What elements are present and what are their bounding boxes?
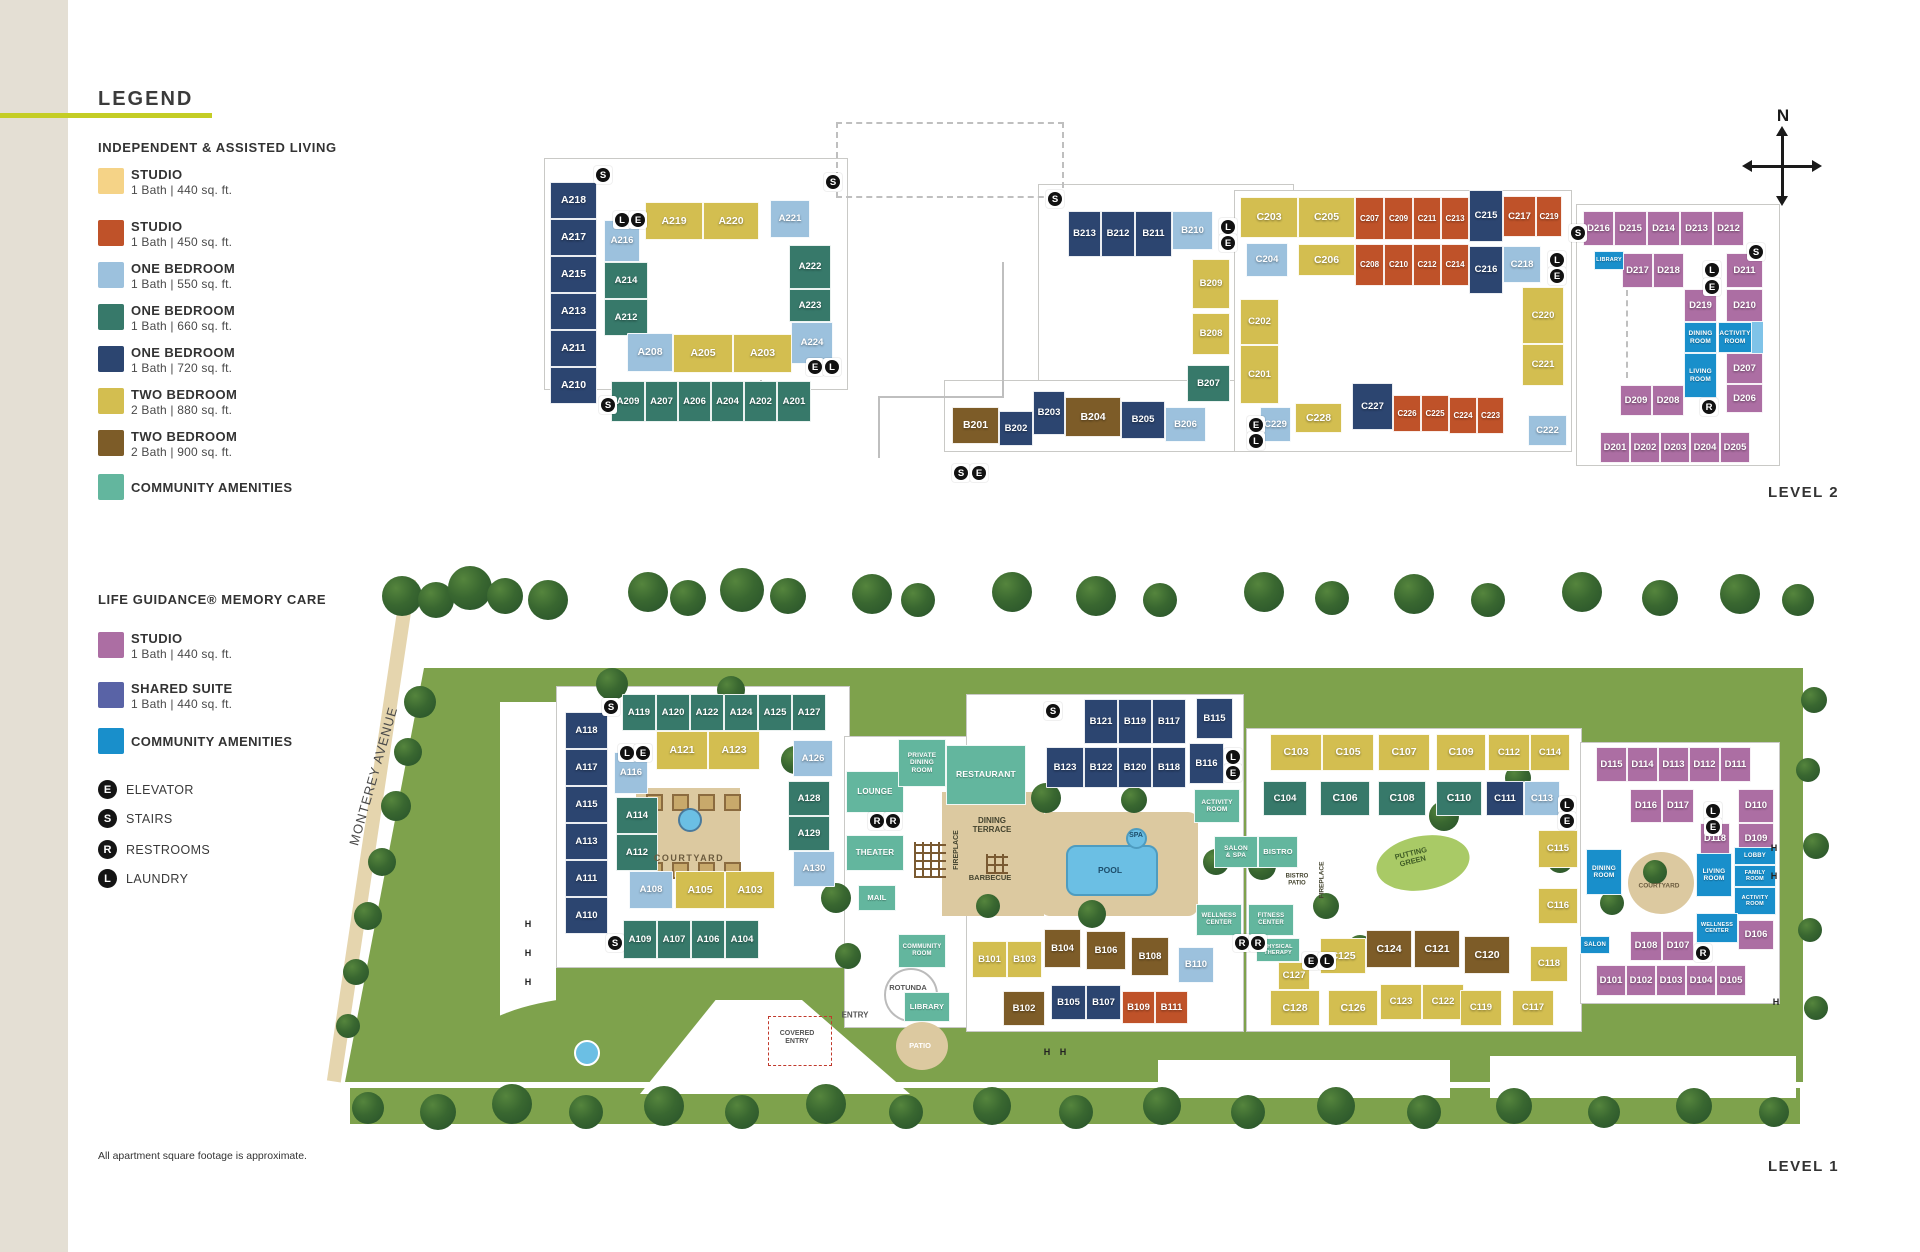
unit-c211: C211 [1413,197,1441,240]
restrooms-icon: R [1249,934,1267,952]
unit-a218: A218 [550,182,597,219]
elevator-icon: E [1219,234,1237,252]
unit-c226: C226 [1393,395,1421,432]
unit-d116: D116 [1630,789,1662,823]
tree-icon [1143,583,1177,617]
room-bistro: BISTRO [1258,836,1298,868]
tree-icon [1759,1097,1789,1127]
unit-d210: D210 [1726,289,1763,322]
unit-c213: C213 [1441,197,1469,240]
stairs-icon: S [98,809,117,828]
unit-a123: A123 [708,731,760,770]
site-label-bistro-patio: BISTRO PATIO [1286,873,1309,886]
stairs-icon: S [1569,224,1587,242]
legend-swatch [98,632,124,658]
unit-c218: C218 [1503,246,1541,283]
tree-icon [1782,584,1814,616]
legend-key-label: STAIRS [126,812,173,826]
legend-item-detail: 1 Bath | 440 sq. ft. [131,697,232,711]
unit-c212: C212 [1413,244,1441,286]
elevator-icon: E [806,358,824,376]
unit-b204: B204 [1065,397,1121,437]
unit-c113: C113 [1524,781,1560,816]
room-wellness-center: WELLNESS CENTER [1196,904,1242,936]
legend-item-name: ONE BEDROOM [131,261,235,276]
elevator-icon: E [1224,764,1242,782]
pergola [986,854,1008,874]
room-salon-spa: SALON & SPA [1214,836,1258,868]
unit-a128: A128 [788,781,830,816]
unit-c108: C108 [1378,781,1426,816]
unit-b123: B123 [1046,747,1084,788]
room-community-room: COMMUNITY ROOM [898,934,946,968]
unit-b118: B118 [1152,747,1186,788]
unit-d110: D110 [1738,789,1774,823]
unit-a118: A118 [565,712,608,749]
tree-icon [1231,1095,1265,1129]
restrooms-icon: R [98,840,117,859]
tree-icon [343,959,369,985]
tree-icon [368,848,396,876]
unit-d202: D202 [1630,432,1660,463]
restrooms-icon: R [1700,398,1718,416]
room-private-dining-room: PRIVATE DINING ROOM [898,739,946,787]
restrooms-icon: R [1694,944,1712,962]
legend-item-name: STUDIO [131,219,183,234]
elevator-icon: E [970,464,988,482]
tree-icon [354,902,382,930]
page-edge-strip [0,0,68,1252]
unit-a205: A205 [673,334,733,373]
footprint-outline [1002,262,1062,396]
unit-a127: A127 [792,694,826,731]
unit-d209: D209 [1620,385,1652,416]
unit-b202: B202 [999,411,1033,446]
legend-item-detail: 1 Bath | 660 sq. ft. [131,319,232,333]
unit-d218: D218 [1653,253,1684,288]
unit-b107: B107 [1086,985,1121,1020]
unit-a201: A201 [777,381,811,422]
unit-c115: C115 [1538,830,1578,868]
unit-c124: C124 [1366,930,1412,968]
room-activity-room: ACTIVITY ROOM [1718,322,1752,353]
tree-icon [1244,572,1284,612]
parking-bottom-mid [1158,1060,1450,1098]
legend-item: ONE BEDROOM1 Bath | 720 sq. ft. [98,346,358,390]
tree-icon [1676,1088,1712,1124]
unit-d207: D207 [1726,353,1763,384]
unit-b110: B110 [1178,947,1214,983]
unit-b205: B205 [1121,401,1165,439]
unit-c219: C219 [1536,196,1562,237]
tree-icon [644,1086,684,1126]
unit-c225: C225 [1421,395,1449,432]
tree-icon [806,1084,846,1124]
legend-item-name: COMMUNITY AMENITIES [131,480,292,495]
tree-icon [528,580,568,620]
unit-c228: C228 [1295,403,1342,433]
unit-a130: A130 [793,851,835,887]
unit-b206: B206 [1165,407,1206,442]
tree-icon [628,572,668,612]
unit-c205: C205 [1298,197,1355,238]
unit-c208: C208 [1355,244,1384,286]
room-restaurant: RESTAURANT [946,745,1026,805]
tree-icon [1143,1087,1181,1125]
room-dining-room: DINING ROOM [1684,322,1717,353]
unit-d203: D203 [1660,432,1690,463]
tree-icon [1059,1095,1093,1129]
legend-key-item: SSTAIRS [98,809,298,833]
unit-b201: B201 [952,407,999,444]
unit-d216: D216 [1583,211,1614,246]
pond [574,1040,600,1066]
legend-item: COMMUNITY AMENITIES [98,728,358,772]
unit-a119: A119 [622,694,656,731]
unit-c103: C103 [1270,734,1322,771]
legend-item-name: STUDIO [131,631,183,646]
tree-icon [1642,580,1678,616]
unit-b116: B116 [1189,743,1224,784]
unit-a121: A121 [656,731,708,770]
tree-icon [992,572,1032,612]
footprint-outline [1598,290,1628,378]
unit-d215: D215 [1614,211,1647,246]
unit-a217: A217 [550,219,597,256]
unit-a211: A211 [550,330,597,367]
unit-a110: A110 [565,897,608,934]
legend-item: ONE BEDROOM1 Bath | 660 sq. ft. [98,304,358,348]
unit-a112: A112 [616,834,658,871]
unit-c119: C119 [1460,990,1502,1026]
unit-b108: B108 [1131,937,1169,976]
stairs-icon: S [1046,190,1064,208]
unit-c214: C214 [1441,244,1469,286]
elevator-icon: E [1703,278,1721,296]
unit-d112: D112 [1689,747,1720,782]
unit-a203: A203 [733,334,792,373]
unit-c121: C121 [1414,930,1460,968]
tree-icon [1078,900,1106,928]
unit-a204: A204 [711,381,744,422]
elevator-icon: E [1704,818,1722,836]
unit-a122: A122 [690,694,724,731]
tree-icon [901,583,935,617]
site-label-dining-terrace: DINING TERRACE [973,817,1012,835]
legend-swatch [98,168,124,194]
tree-icon [1313,893,1339,919]
unit-b111: B111 [1155,991,1188,1024]
unit-c116: C116 [1538,888,1578,924]
unit-b101: B101 [972,941,1007,978]
laundry-icon: L [823,358,841,376]
tree-icon [1588,1096,1620,1128]
handicap-marker: H [1044,1047,1051,1057]
room-family-room: FAMILY ROOM [1734,865,1776,887]
unit-d104: D104 [1686,965,1716,996]
unit-d107: D107 [1662,931,1694,961]
legend-item-name: ONE BEDROOM [131,303,235,318]
tree-icon [404,686,436,718]
tree-icon [889,1095,923,1129]
legend-item: TWO BEDROOM2 Bath | 880 sq. ft. [98,388,358,432]
unit-d214: D214 [1647,211,1680,246]
handicap-marker: H [525,919,532,929]
legend-swatch [98,682,124,708]
unit-d101: D101 [1596,965,1626,996]
tree-icon [420,1094,456,1130]
unit-a109: A109 [623,920,657,959]
restrooms-icon: R [884,812,902,830]
unit-c222: C222 [1528,415,1567,446]
unit-c202: C202 [1240,299,1279,345]
laundry-icon: L [1318,952,1336,970]
tree-icon [670,580,706,616]
tree-icon [852,574,892,614]
unit-b104: B104 [1044,929,1081,968]
umbrella-table [724,794,741,811]
unit-d105: D105 [1716,965,1746,996]
site-label-fireplace: FIREPLACE [953,830,961,870]
stairs-icon: S [1747,243,1765,261]
unit-a113: A113 [565,823,608,860]
unit-b213: B213 [1068,211,1101,257]
unit-d208: D208 [1652,385,1684,416]
unit-a129: A129 [788,816,830,851]
unit-b105: B105 [1051,985,1086,1020]
elevator-icon: E [1558,812,1576,830]
unit-a117: A117 [565,749,608,786]
tree-icon [382,576,422,616]
legend-item: STUDIO1 Bath | 440 sq. ft. [98,632,358,676]
unit-a212: A212 [604,299,648,336]
tree-icon [1394,574,1434,614]
tree-icon [1804,996,1828,1020]
site-label-covered-entry: COVERED ENTRY [780,1030,815,1046]
unit-c107: C107 [1378,734,1430,771]
legend-item-detail: 1 Bath | 550 sq. ft. [131,277,232,291]
legend-item-detail: 1 Bath | 440 sq. ft. [131,647,232,661]
legend-swatch [98,346,124,372]
legend-item-name: ONE BEDROOM [131,345,235,360]
room-living-room: LIVING ROOM [1684,353,1717,398]
tree-icon [381,791,411,821]
unit-c220: C220 [1522,287,1564,344]
unit-a208: A208 [627,333,673,372]
unit-d108: D108 [1630,931,1662,961]
legend-item-detail: 2 Bath | 880 sq. ft. [131,403,232,417]
unit-a107: A107 [657,920,691,959]
unit-c126: C126 [1328,990,1378,1026]
unit-c207: C207 [1355,197,1384,240]
tree-icon [725,1095,759,1129]
legend-item-detail: 1 Bath | 720 sq. ft. [131,361,232,375]
legend-item-name: COMMUNITY AMENITIES [131,734,292,749]
unit-c224: C224 [1449,397,1477,434]
room-wellness-center: WELLNESS CENTER [1696,913,1738,943]
legend-section-heading: LIFE GUIDANCE® MEMORY CARE [98,592,326,607]
tree-icon [821,883,851,913]
site-label-entry: ENTRY [842,1012,869,1021]
legend-section-heading: INDEPENDENT & ASSISTED LIVING [98,140,337,155]
room-library: LIBRARY [904,992,950,1022]
footnote: All apartment square footage is approxim… [98,1150,307,1162]
unit-c216: C216 [1469,246,1503,294]
tree-icon [770,578,806,614]
laundry-icon: L [1247,432,1265,450]
unit-c118: C118 [1530,946,1568,982]
site-label-barbecue: BARBECUE [969,874,1012,882]
unit-d205: D205 [1720,432,1750,463]
unit-a223: A223 [789,289,831,322]
legend-key-item: RRESTROOMS [98,840,298,864]
unit-b211: B211 [1135,211,1172,257]
legend-title: LEGEND [98,88,193,111]
tree-icon [336,1014,360,1038]
stairs-icon: S [594,166,612,184]
unit-a220: A220 [703,202,759,240]
handicap-marker: H [1773,997,1780,1007]
unit-b212: B212 [1101,211,1135,257]
unit-b117: B117 [1152,699,1186,744]
unit-a103: A103 [725,871,775,909]
tree-icon [1407,1095,1441,1129]
legend-item: TWO BEDROOM2 Bath | 900 sq. ft. [98,430,358,474]
tree-icon [1317,1087,1355,1125]
unit-a207: A207 [645,381,678,422]
tree-icon [1720,574,1760,614]
unit-b210: B210 [1172,211,1213,250]
stairs-icon: S [599,396,617,414]
handicap-marker: H [1060,1047,1067,1057]
parking-top-mid [1112,620,1244,658]
handicap-marker: H [1771,843,1778,853]
unit-a125: A125 [758,694,792,731]
unit-c109: C109 [1436,734,1486,771]
unit-c204: C204 [1246,243,1288,277]
tree-icon [569,1095,603,1129]
legend-item-name: TWO BEDROOM [131,429,237,444]
unit-c105: C105 [1322,734,1374,771]
unit-b208: B208 [1192,313,1230,355]
site-label-patio: PATIO [909,1042,931,1050]
elevator-icon: E [1548,267,1566,285]
tree-icon [1471,583,1505,617]
unit-c203: C203 [1240,197,1298,238]
unit-d206: D206 [1726,384,1763,413]
unit-c117: C117 [1512,990,1554,1026]
legend-key-label: RESTROOMS [126,843,210,857]
room-library: LIBRARY [1594,251,1624,270]
pergola [914,842,946,878]
room-mail: MAIL [858,885,896,911]
tree-icon [976,894,1000,918]
floor-plan-page: LEGEND INDEPENDENT & ASSISTED LIVINGSTUD… [0,0,1920,1252]
unit-d102: D102 [1626,965,1656,996]
unit-d212: D212 [1713,211,1744,246]
site-label-rotunda: ROTUNDA [889,984,927,992]
unit-d113: D113 [1658,747,1689,782]
unit-d213: D213 [1680,211,1713,246]
unit-c201: C201 [1240,345,1279,404]
tree-icon [835,943,861,969]
room-living-room: LIVING ROOM [1696,853,1732,897]
legend-item-name: SHARED SUITE [131,681,233,696]
elevator-icon: E [98,780,117,799]
legend-key-label: LAUNDRY [126,872,188,886]
unit-c110: C110 [1436,781,1482,816]
legend-swatch [98,388,124,414]
legend-item-name: STUDIO [131,167,183,182]
unit-a106: A106 [691,920,725,959]
handicap-marker: H [525,977,532,987]
tree-icon [1796,758,1820,782]
legend-item: SHARED SUITE1 Bath | 440 sq. ft. [98,682,358,726]
legend-item: STUDIO1 Bath | 450 sq. ft. [98,220,358,264]
legend-item-detail: 1 Bath | 440 sq. ft. [131,183,232,197]
unit-b209: B209 [1192,259,1230,309]
tree-icon [1496,1088,1532,1124]
legend-swatch [98,474,124,500]
site-label-spa: SPA [1129,832,1143,840]
unit-d115: D115 [1596,747,1627,782]
unit-c210: C210 [1384,244,1413,286]
tree-icon [492,1084,532,1124]
handicap-marker: H [525,948,532,958]
unit-d106: D106 [1738,920,1774,950]
stairs-icon: S [602,698,620,716]
unit-a126: A126 [793,740,833,777]
tree-icon [394,738,422,766]
fountain [678,808,702,832]
stairs-icon: S [606,934,624,952]
unit-a219: A219 [645,202,703,240]
unit-b102: B102 [1003,991,1045,1026]
unit-a114: A114 [616,797,658,834]
room-dining-room: DINING ROOM [1586,849,1622,895]
site-label-courtyard: COURTYARD [1639,882,1680,889]
tree-icon [1562,572,1602,612]
parking-bottom-right [1490,1056,1796,1098]
unit-a115: A115 [565,786,608,823]
unit-c209: C209 [1384,197,1413,240]
legend-item-detail: 1 Bath | 450 sq. ft. [131,235,232,249]
legend-swatch [98,430,124,456]
level2-label: LEVEL 2 [1768,484,1839,501]
unit-a215: A215 [550,256,597,293]
stairs-icon: S [824,173,842,191]
tree-icon [720,568,764,612]
unit-a213: A213 [550,293,597,330]
unit-d217: D217 [1622,253,1653,288]
site-label-pool: POOL [1098,866,1122,876]
unit-b203: B203 [1033,391,1065,435]
unit-b115: B115 [1196,698,1233,739]
unit-c227: C227 [1352,383,1393,430]
unit-a222: A222 [789,245,831,289]
tree-icon [1798,918,1822,942]
unit-c221: C221 [1522,344,1564,386]
unit-a210: A210 [550,367,597,404]
stairs-icon: S [1044,702,1062,720]
parking-top-right [1368,616,1796,656]
legend-key-label: ELEVATOR [126,783,194,797]
legend-item-name: TWO BEDROOM [131,387,237,402]
unit-d103: D103 [1656,965,1686,996]
level1-label: LEVEL 1 [1768,1158,1839,1175]
unit-a105: A105 [675,871,725,909]
room-salon: SALON [1580,936,1610,954]
